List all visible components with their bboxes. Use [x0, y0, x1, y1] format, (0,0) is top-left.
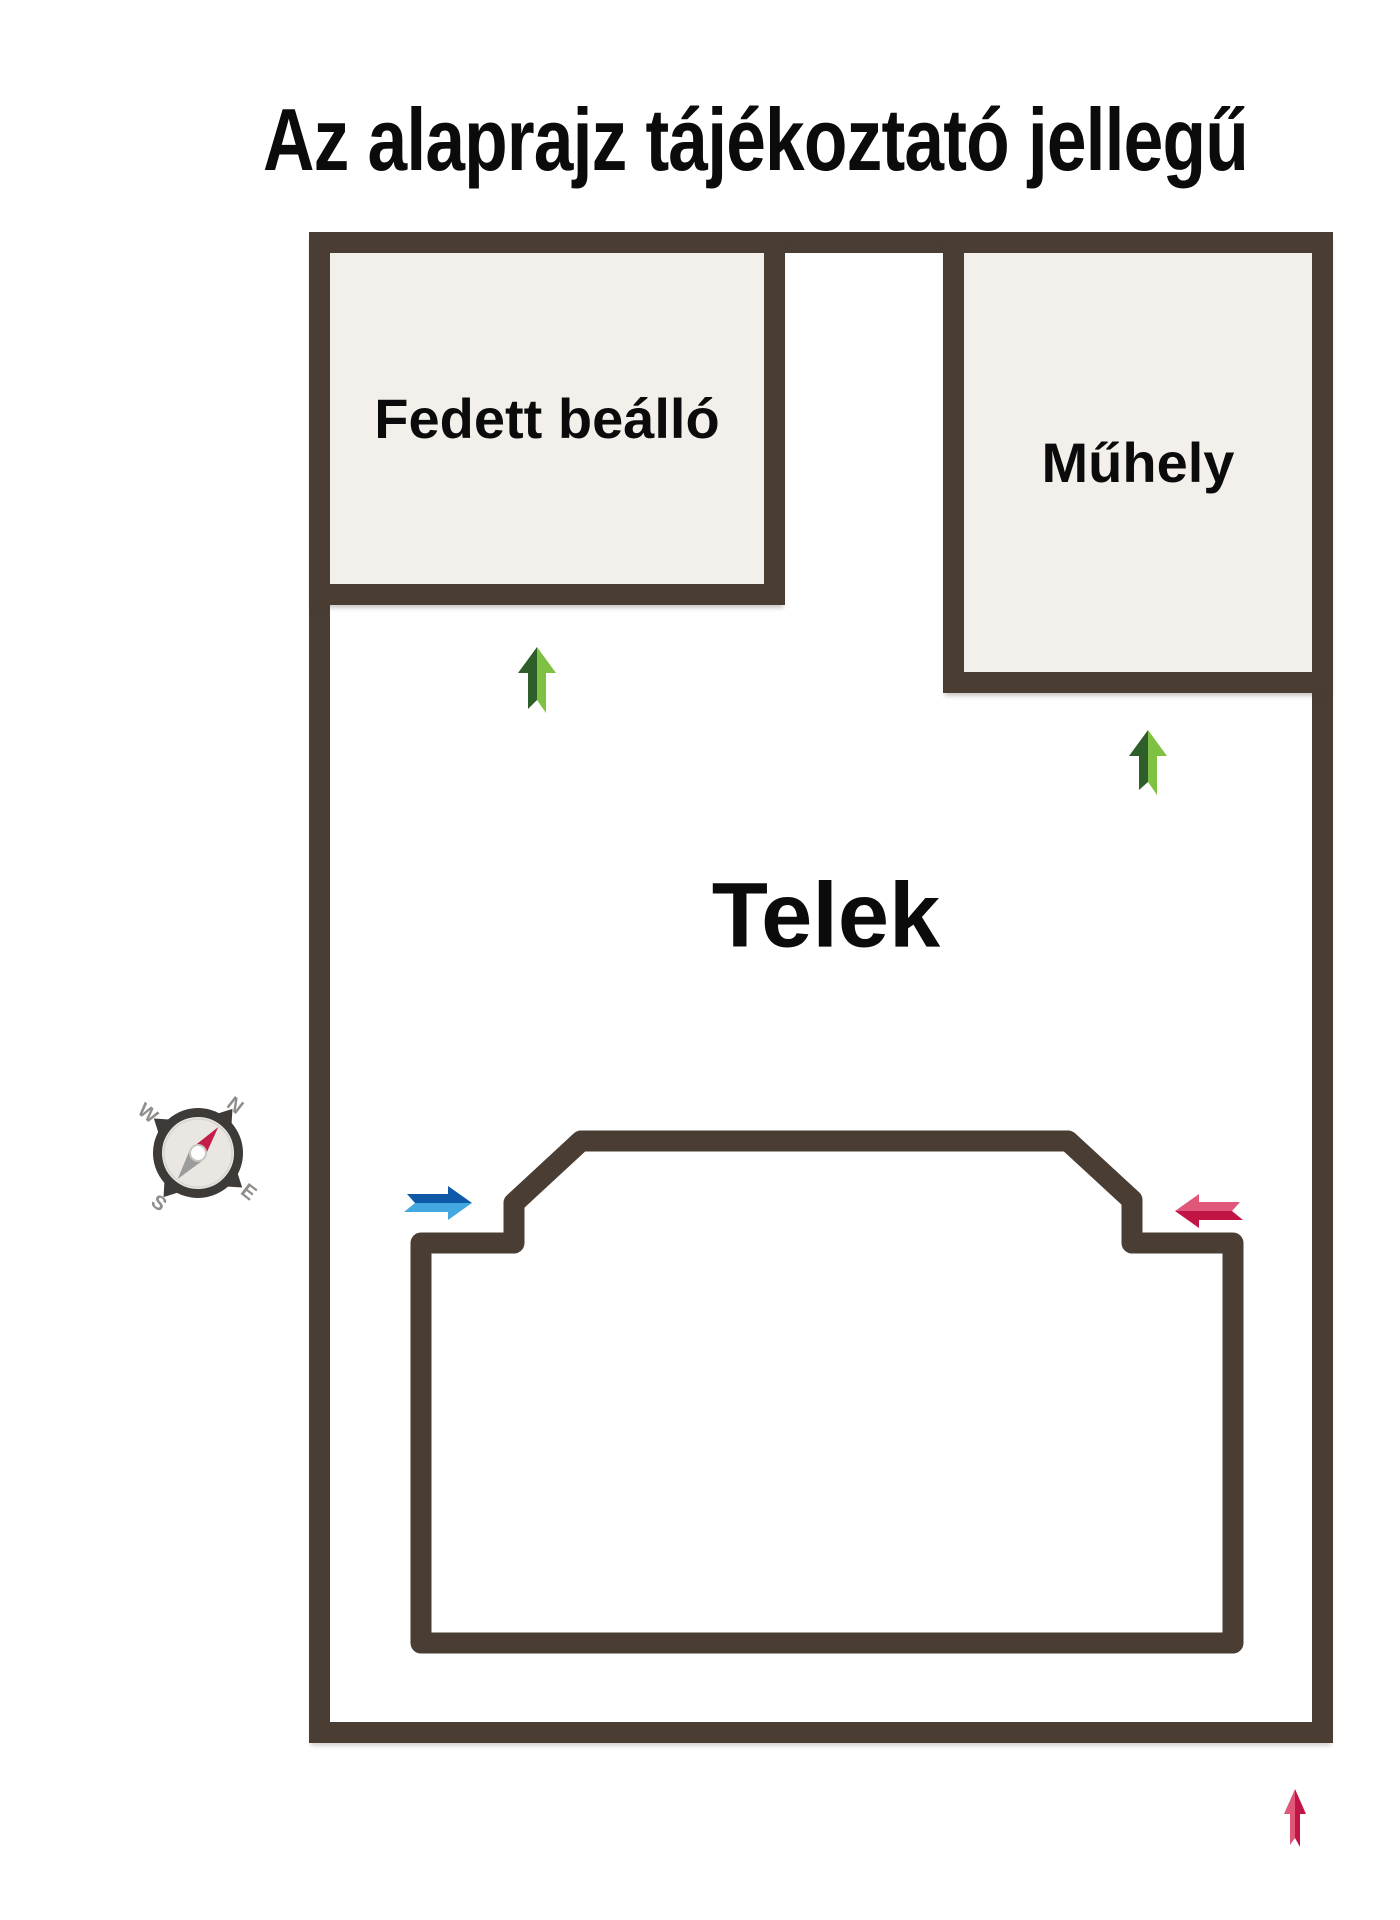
- house-outline: [421, 1141, 1233, 1643]
- blue-right-arrow-icon: [404, 1186, 472, 1220]
- green-up-arrow-icon: [1129, 730, 1167, 795]
- green-up-arrow-icon: [518, 647, 556, 713]
- red-up-arrow-icon: [1284, 1789, 1306, 1847]
- floor-plan-canvas: Az alaprajz tájékoztató jellegű Fedett b…: [0, 0, 1400, 1920]
- red-left-arrow-icon: [1175, 1194, 1243, 1228]
- plan-graphics: N E S W: [0, 0, 1400, 1920]
- compass-icon: N E S W: [94, 1052, 297, 1256]
